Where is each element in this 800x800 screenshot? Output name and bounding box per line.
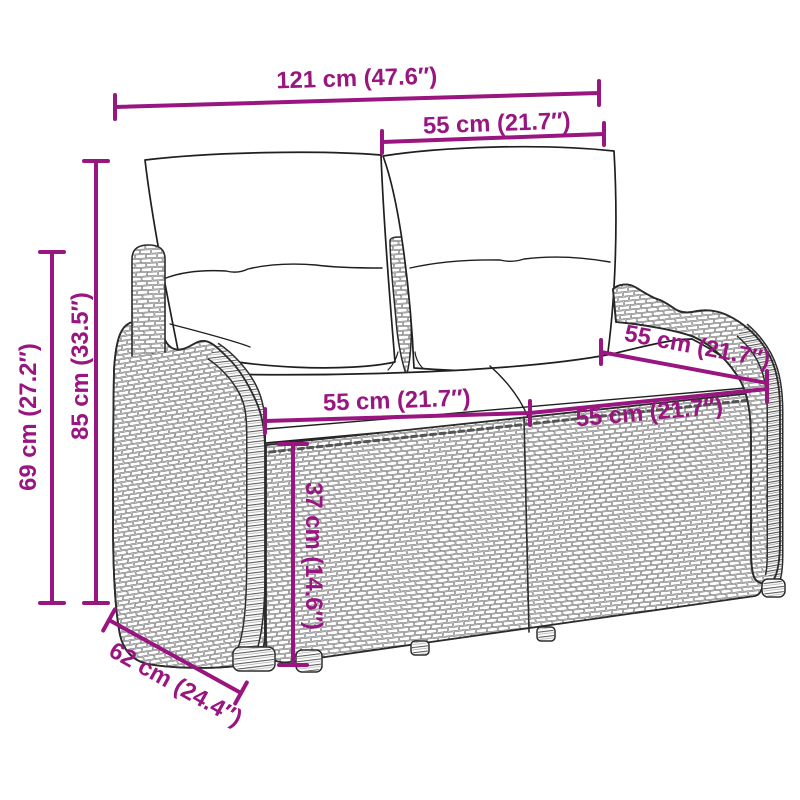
svg-text:121 cm (47.6″): 121 cm (47.6″) [276,63,438,95]
svg-text:55 cm (21.7″): 55 cm (21.7″) [322,384,471,416]
svg-text:85 cm (33.5″): 85 cm (33.5″) [67,292,94,440]
svg-text:37 cm (14.6″): 37 cm (14.6″) [300,482,327,630]
svg-text:69 cm (27.2″): 69 cm (27.2″) [15,343,42,491]
svg-text:55 cm (21.7″): 55 cm (21.7″) [422,107,571,139]
